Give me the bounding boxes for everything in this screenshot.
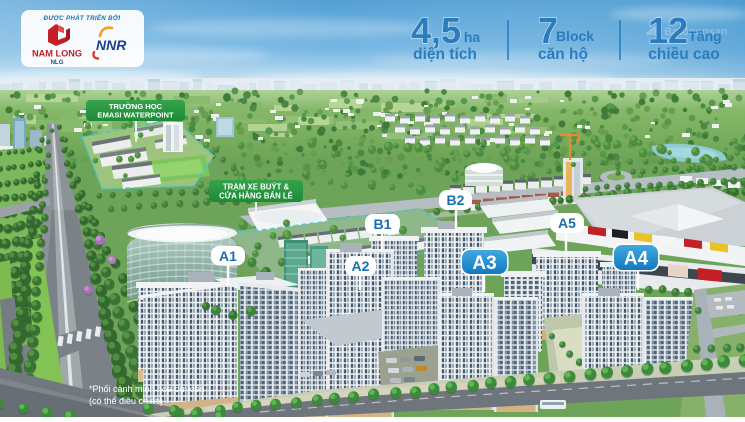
- svg-text:B1: B1: [374, 216, 392, 232]
- svg-text:(có thể điều chỉnh): (có thể điều chỉnh): [89, 396, 163, 406]
- svg-text:4,5: 4,5: [411, 10, 461, 51]
- svg-text:chiều cao: chiều cao: [648, 46, 720, 63]
- svg-text:EMASI WATERPOINT: EMASI WATERPOINT: [97, 111, 174, 120]
- svg-text:căn hộ: căn hộ: [538, 46, 588, 63]
- svg-text:ĐƯỢC PHÁT TRIỂN BỞI: ĐƯỢC PHÁT TRIỂN BỞI: [44, 15, 121, 22]
- svg-text:A4: A4: [624, 248, 649, 269]
- svg-text:Tầng: Tầng: [688, 28, 721, 44]
- svg-text:A5: A5: [558, 215, 576, 231]
- svg-text:TRẠM XE BUÝT &: TRẠM XE BUÝT &: [223, 182, 290, 191]
- svg-text:B2: B2: [447, 192, 465, 208]
- svg-text:Block: Block: [556, 28, 594, 44]
- svg-text:CỬA HÀNG BÁN LẺ: CỬA HÀNG BÁN LẺ: [219, 191, 293, 200]
- svg-text:NNR: NNR: [96, 37, 127, 53]
- svg-text:NAM LONG: NAM LONG: [32, 49, 82, 59]
- svg-text:NLG: NLG: [50, 59, 63, 66]
- svg-text:ha: ha: [464, 29, 481, 45]
- svg-text:A2: A2: [352, 258, 370, 274]
- svg-text:12: 12: [648, 10, 688, 51]
- svg-text:A1: A1: [219, 248, 237, 264]
- svg-text:*Phối cảnh minh họa dự kiến: *Phối cảnh minh họa dự kiến: [89, 384, 205, 394]
- svg-text:diện tích: diện tích: [413, 46, 477, 63]
- svg-text:A3: A3: [472, 253, 496, 274]
